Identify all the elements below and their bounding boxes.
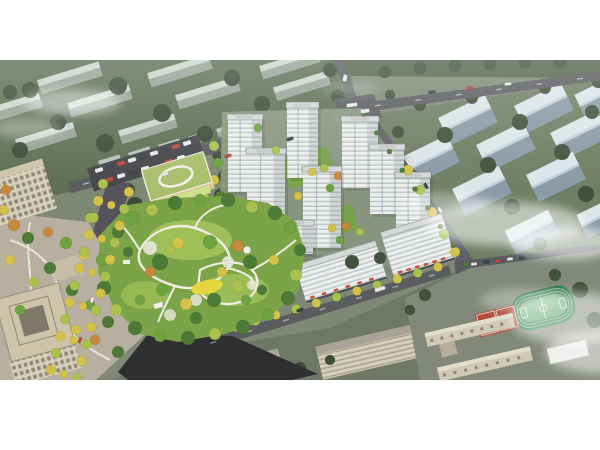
tree — [269, 255, 279, 265]
tree — [51, 348, 61, 358]
tree — [332, 293, 341, 302]
tree — [105, 255, 115, 265]
tree — [294, 192, 302, 200]
tree — [145, 267, 155, 277]
tree — [281, 291, 295, 305]
tree — [209, 328, 221, 340]
tree — [325, 355, 335, 365]
tree — [89, 213, 99, 223]
tree — [419, 289, 431, 301]
tree — [123, 247, 133, 257]
mist-cloud — [400, 193, 490, 217]
tree — [65, 297, 75, 307]
tree — [356, 228, 364, 236]
tree — [246, 201, 258, 213]
pavilion-2 — [244, 247, 251, 254]
tree — [463, 261, 468, 266]
tree — [336, 236, 344, 244]
scene — [0, 49, 600, 386]
tree — [69, 336, 77, 344]
pavilion-3 — [123, 260, 130, 264]
tree — [135, 295, 145, 305]
tree — [8, 219, 20, 231]
tree — [93, 196, 103, 206]
tree — [100, 272, 110, 282]
tree — [74, 264, 84, 274]
tree — [5, 255, 15, 265]
tree — [434, 263, 443, 272]
tree — [257, 285, 267, 295]
tree — [236, 320, 250, 334]
tree — [107, 201, 115, 209]
page — [0, 0, 600, 450]
tree — [96, 288, 106, 298]
tree — [180, 298, 192, 310]
tree — [243, 255, 257, 269]
tree — [81, 339, 91, 349]
tree — [60, 237, 72, 249]
tree — [88, 269, 96, 277]
tree — [203, 235, 217, 249]
tree — [345, 255, 359, 269]
mist-cloud — [322, 81, 378, 95]
tree — [221, 193, 235, 207]
tree — [241, 295, 251, 305]
tree — [549, 269, 561, 281]
tree — [156, 284, 168, 296]
tree — [15, 305, 25, 315]
tree — [284, 222, 296, 234]
vehicle — [471, 262, 477, 266]
vehicle — [495, 259, 501, 263]
tree — [44, 262, 56, 274]
tree — [312, 299, 321, 308]
tree — [393, 275, 402, 284]
tree — [0, 205, 9, 215]
tree — [342, 222, 350, 230]
tree — [168, 196, 182, 210]
tree — [194, 194, 206, 206]
tree — [115, 221, 125, 231]
tree — [29, 277, 39, 287]
tree — [217, 267, 227, 277]
tree — [72, 373, 82, 383]
tree — [43, 227, 53, 237]
mist-cloud — [480, 288, 560, 312]
vehicle — [507, 257, 513, 261]
tree — [60, 370, 68, 378]
tree — [119, 204, 129, 214]
tree — [328, 224, 336, 232]
tree — [46, 365, 56, 375]
tree — [374, 252, 386, 264]
tree — [165, 245, 175, 255]
tree — [86, 322, 96, 332]
tree — [232, 240, 244, 252]
tree — [451, 243, 456, 248]
tree — [102, 316, 114, 328]
tree — [91, 305, 101, 315]
tree — [294, 244, 306, 256]
mist-cloud — [24, 89, 120, 115]
tree — [146, 204, 158, 216]
tree — [262, 309, 274, 321]
tree — [232, 280, 244, 292]
tree — [405, 305, 415, 315]
tree — [128, 321, 142, 335]
tree — [98, 235, 106, 243]
tree — [290, 269, 302, 281]
tree — [190, 312, 202, 324]
tree — [154, 330, 166, 342]
tree — [70, 280, 80, 290]
tree — [112, 346, 124, 358]
tree — [110, 304, 122, 316]
tree — [71, 325, 81, 335]
tree — [268, 206, 282, 220]
tree — [152, 254, 168, 270]
tree — [60, 314, 70, 324]
tree — [352, 287, 361, 296]
tree — [413, 269, 422, 278]
tree — [110, 238, 120, 248]
tree — [450, 247, 460, 257]
tree — [22, 232, 34, 244]
tree — [77, 356, 87, 366]
tree — [55, 331, 65, 341]
tree — [207, 293, 221, 307]
tree — [79, 302, 87, 310]
tree — [181, 331, 195, 345]
masterplan-rendering — [0, 0, 600, 450]
vehicle — [519, 256, 525, 260]
vehicle — [483, 260, 489, 264]
tree — [84, 230, 94, 240]
tree — [79, 247, 89, 257]
